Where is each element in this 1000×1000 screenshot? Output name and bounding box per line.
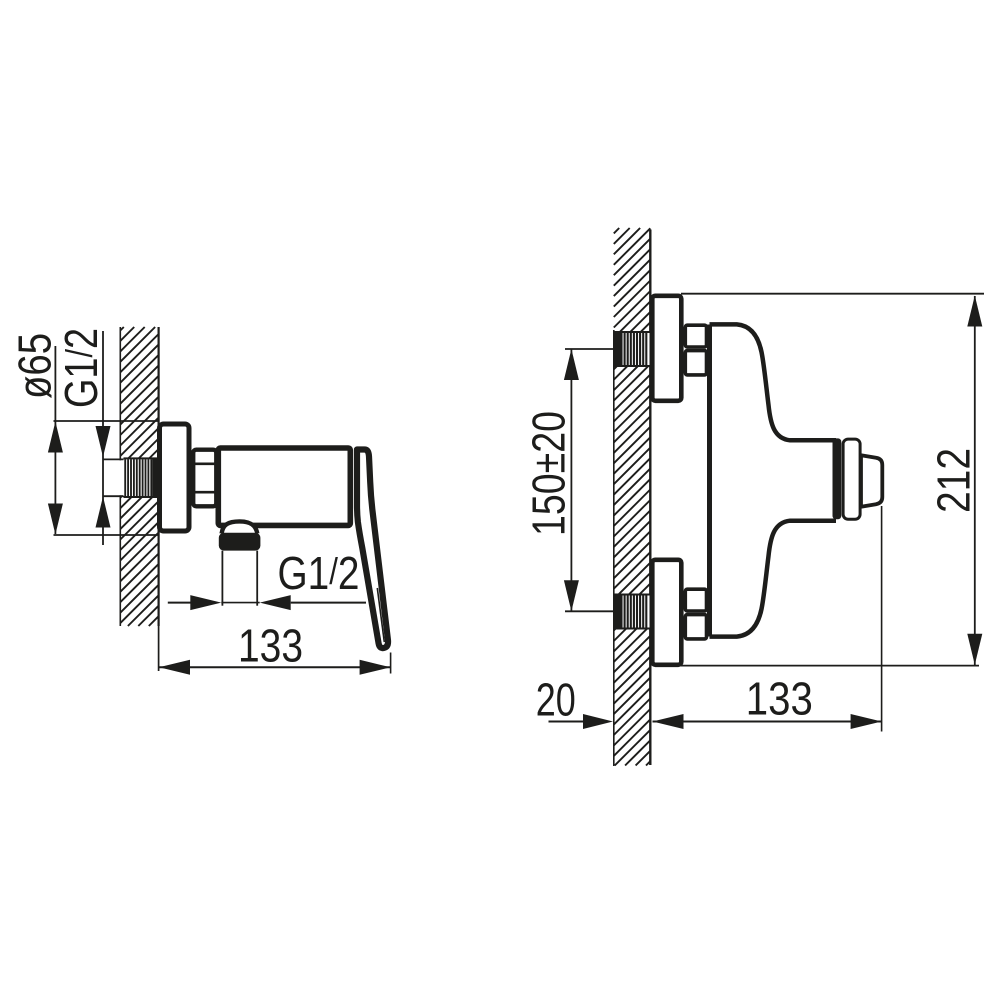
svg-text:ø65: ø65 bbox=[9, 333, 61, 399]
svg-text:212: 212 bbox=[928, 448, 980, 513]
svg-text:133: 133 bbox=[746, 673, 813, 725]
svg-text:G1/2: G1/2 bbox=[55, 328, 107, 408]
svg-text:133: 133 bbox=[238, 620, 303, 672]
svg-text:G1/2: G1/2 bbox=[278, 547, 360, 599]
svg-text:150±20: 150±20 bbox=[523, 411, 575, 536]
svg-text:20: 20 bbox=[536, 673, 576, 725]
